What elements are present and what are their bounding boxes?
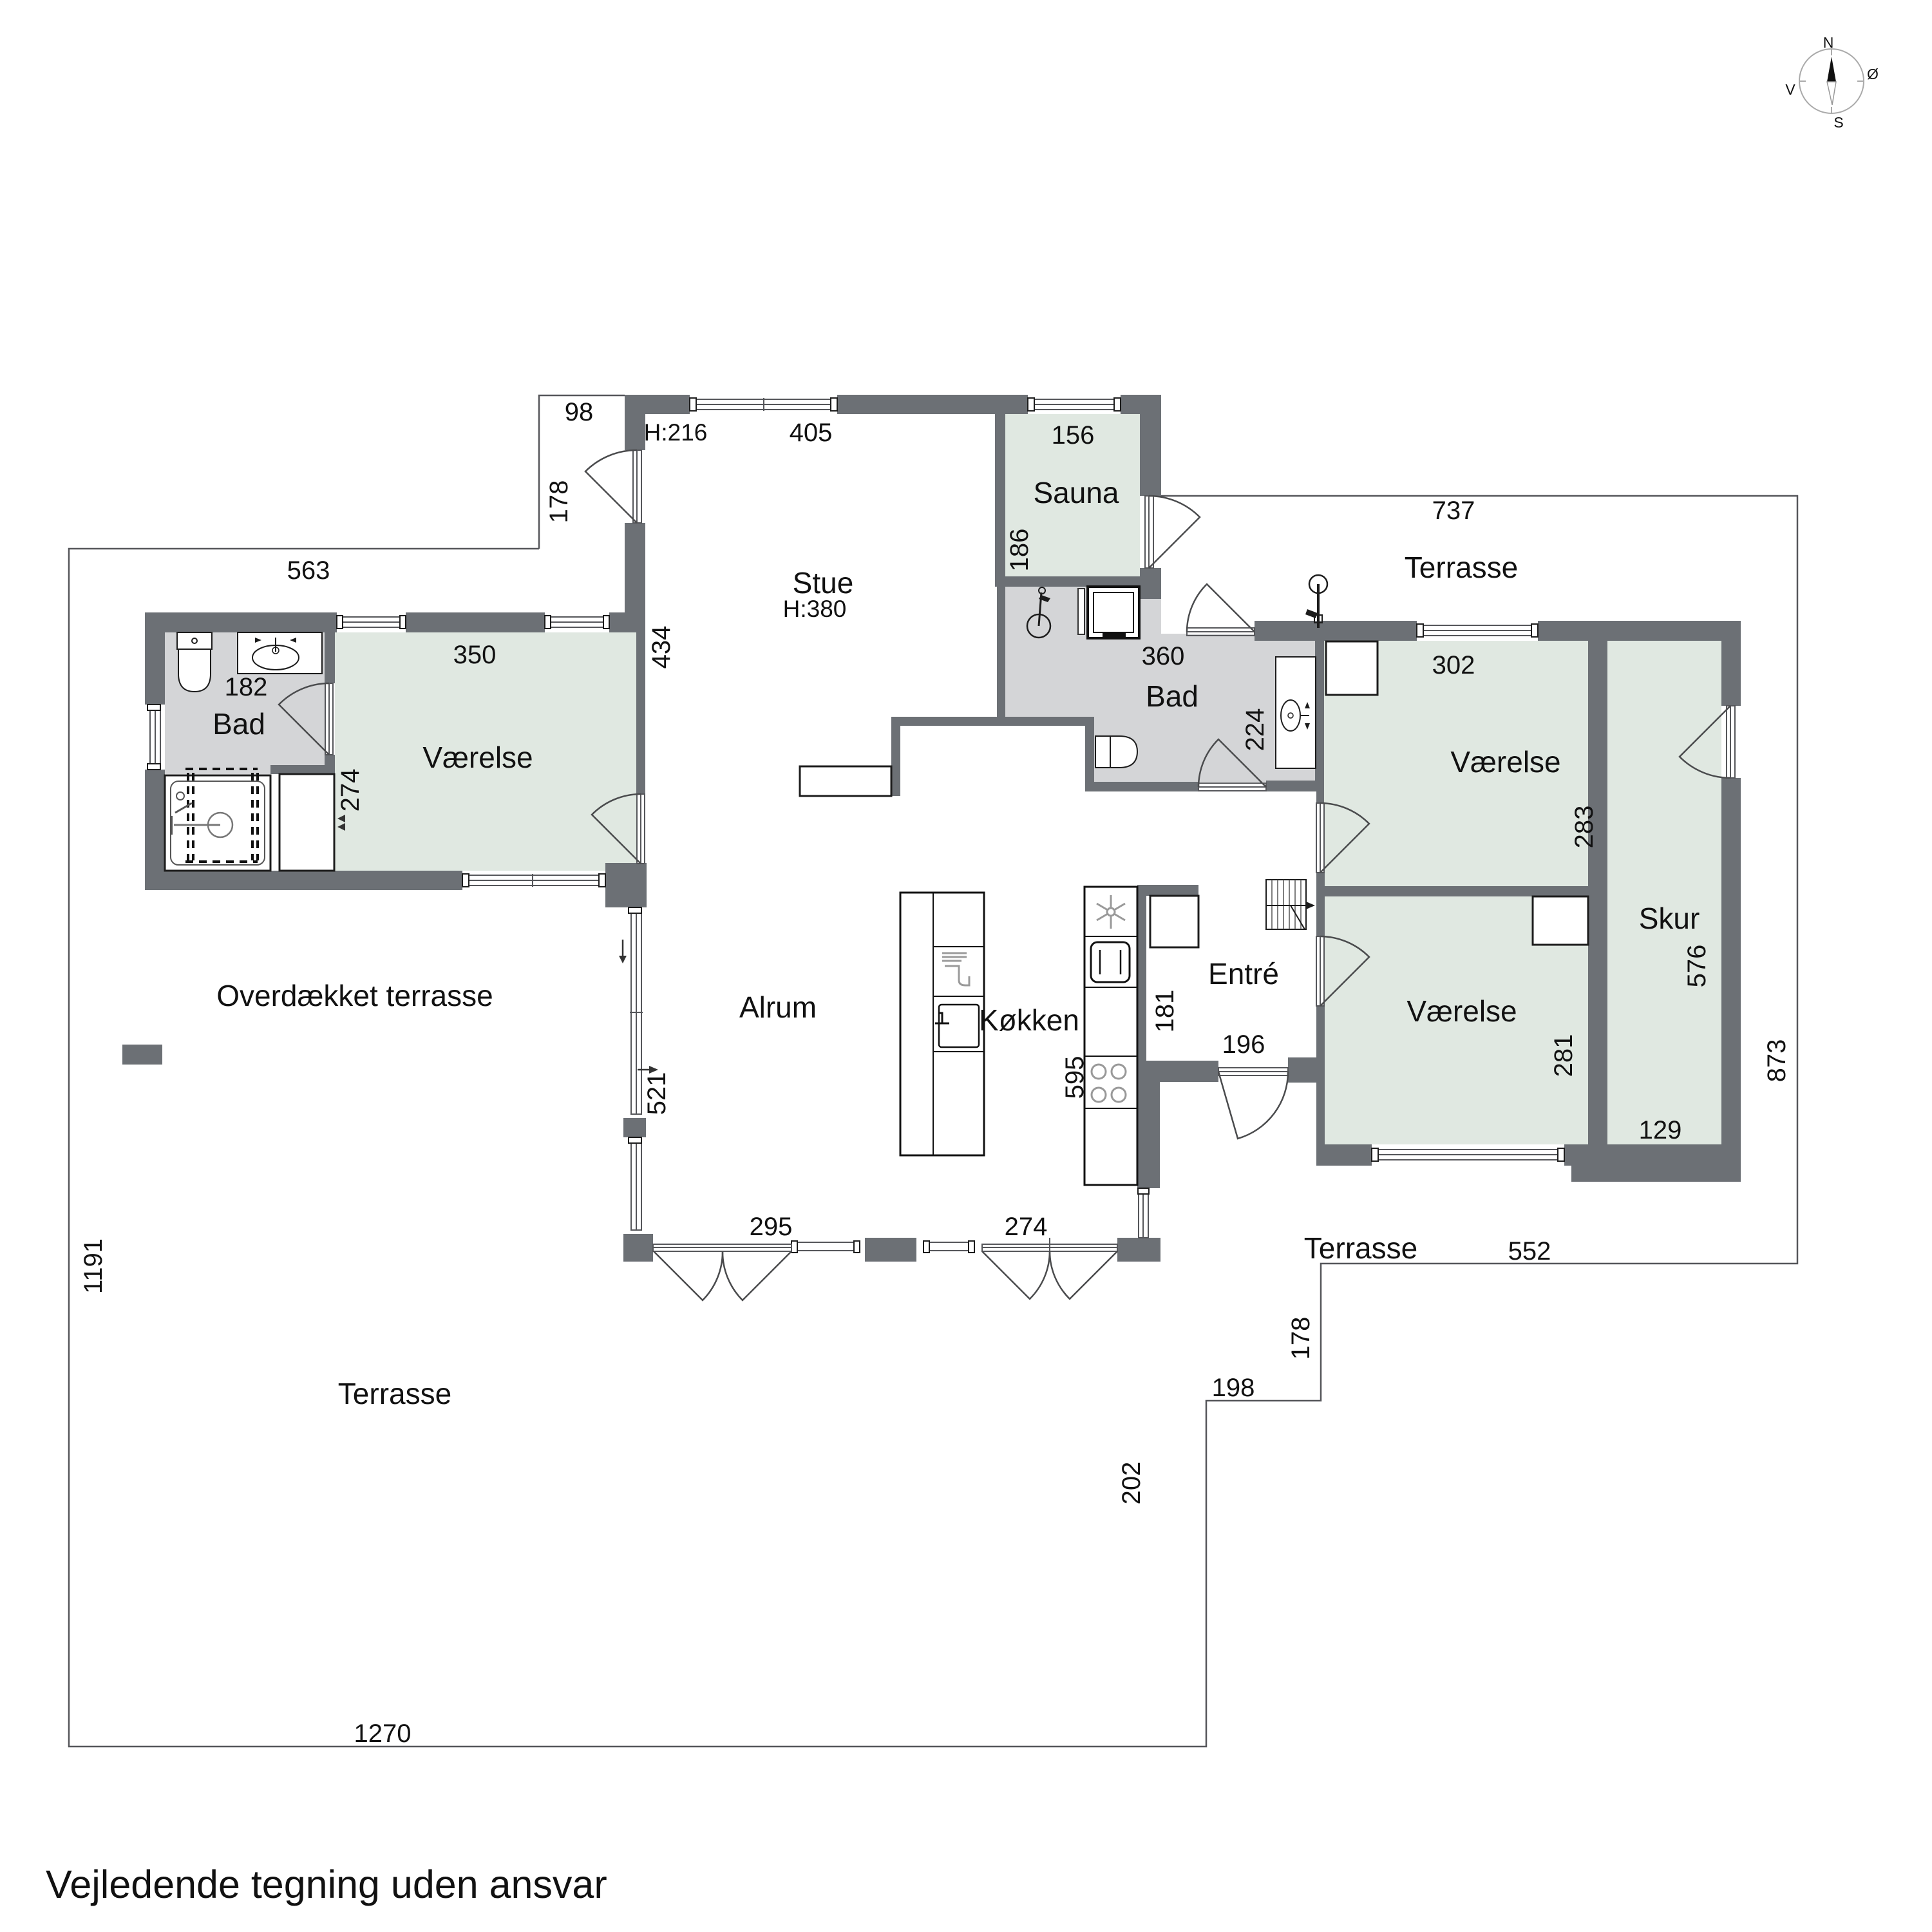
svg-text:Værelse: Værelse	[1406, 994, 1517, 1028]
svg-text:Skur: Skur	[1639, 902, 1700, 935]
svg-text:1270: 1270	[354, 1719, 412, 1748]
svg-text:Bad: Bad	[1146, 679, 1198, 713]
svg-text:N: N	[1823, 34, 1834, 51]
svg-text:196: 196	[1222, 1030, 1265, 1059]
svg-text:Terrasse: Terrasse	[338, 1377, 451, 1410]
svg-text:224: 224	[1241, 708, 1269, 752]
svg-text:198: 198	[1212, 1374, 1255, 1402]
svg-text:1191: 1191	[79, 1238, 108, 1294]
svg-text:552: 552	[1508, 1237, 1551, 1265]
svg-text:156: 156	[1052, 421, 1095, 450]
svg-text:873: 873	[1763, 1039, 1791, 1083]
svg-text:186: 186	[1005, 529, 1034, 572]
svg-text:350: 350	[453, 641, 497, 669]
svg-text:Køkken: Køkken	[979, 1003, 1079, 1037]
svg-text:576: 576	[1683, 945, 1711, 988]
svg-text:178: 178	[545, 480, 573, 524]
svg-text:Terrasse: Terrasse	[1304, 1231, 1417, 1265]
svg-text:202: 202	[1117, 1462, 1146, 1505]
svg-text:Entré: Entré	[1208, 957, 1279, 990]
svg-text:Vejledende tegning uden ansvar: Vejledende tegning uden ansvar	[46, 1862, 607, 1906]
svg-text:274: 274	[336, 769, 365, 812]
svg-text:737: 737	[1432, 497, 1475, 525]
svg-text:178: 178	[1287, 1317, 1315, 1360]
svg-text:405: 405	[790, 419, 833, 447]
svg-text:129: 129	[1639, 1116, 1682, 1144]
svg-text:181: 181	[1151, 990, 1179, 1033]
svg-text:V: V	[1785, 81, 1795, 98]
svg-text:434: 434	[647, 626, 676, 669]
svg-text:98: 98	[565, 398, 594, 426]
svg-text:Alrum: Alrum	[739, 990, 817, 1024]
svg-text:521: 521	[643, 1072, 671, 1115]
svg-text:360: 360	[1142, 642, 1185, 670]
svg-text:281: 281	[1549, 1034, 1578, 1077]
svg-text:274: 274	[1005, 1213, 1048, 1241]
svg-text:S: S	[1833, 114, 1843, 131]
svg-text:H:380: H:380	[783, 596, 847, 622]
svg-text:182: 182	[225, 673, 268, 701]
svg-text:Værelse: Værelse	[1450, 745, 1560, 779]
svg-text:563: 563	[287, 556, 330, 585]
svg-text:Værelse: Værelse	[422, 741, 533, 774]
svg-text:Bad: Bad	[213, 707, 265, 741]
svg-text:Overdækket terrasse: Overdækket terrasse	[216, 979, 493, 1012]
svg-text:Sauna: Sauna	[1033, 476, 1119, 509]
svg-text:Ø: Ø	[1867, 66, 1879, 82]
svg-text:302: 302	[1432, 651, 1475, 679]
svg-text:Stue: Stue	[793, 566, 854, 600]
svg-text:H:216: H:216	[644, 419, 708, 446]
svg-text:595: 595	[1061, 1056, 1089, 1099]
svg-text:283: 283	[1570, 806, 1598, 849]
svg-text:Terrasse: Terrasse	[1405, 551, 1518, 584]
svg-text:295: 295	[750, 1213, 793, 1241]
